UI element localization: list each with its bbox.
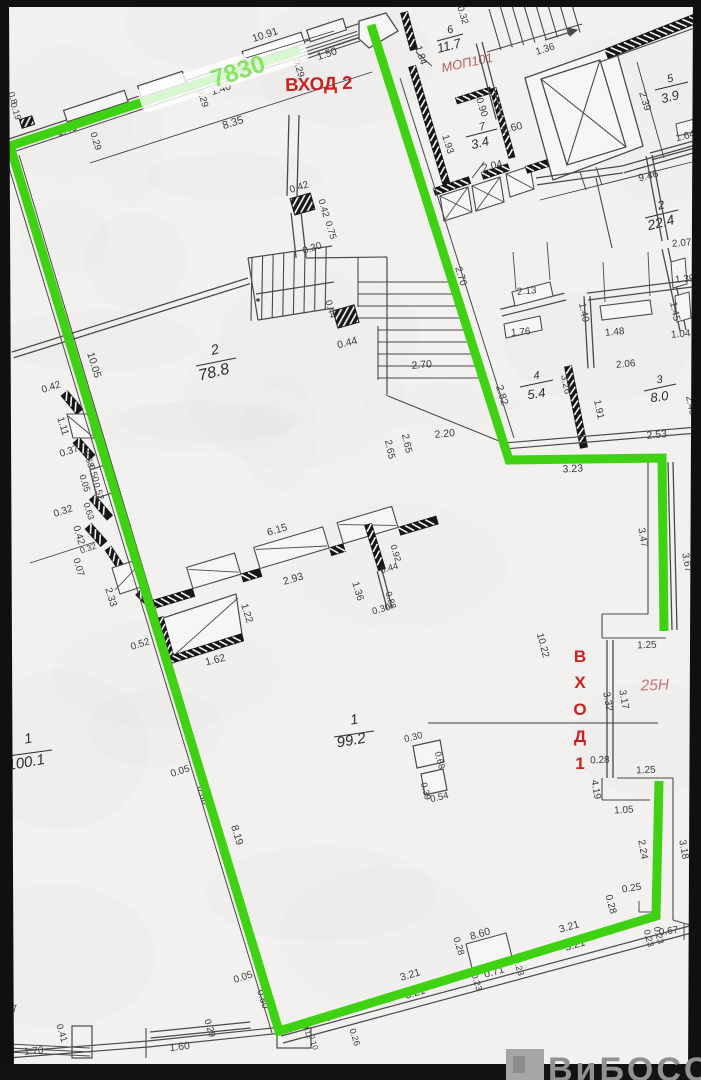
svg-text:1.04: 1.04 [671, 328, 692, 341]
svg-text:В: В [574, 647, 586, 666]
svg-text:1.05: 1.05 [614, 804, 634, 816]
svg-text:8.0: 8.0 [649, 388, 670, 405]
svg-text:1.76: 1.76 [511, 326, 532, 339]
svg-text:25Н: 25Н [639, 676, 670, 694]
svg-text:ВХОД 2: ВХОД 2 [285, 72, 353, 95]
svg-text:Х: Х [574, 673, 586, 692]
svg-text:3.23: 3.23 [562, 462, 583, 475]
svg-text:2.13: 2.13 [517, 285, 538, 298]
svg-text:2.06: 2.06 [616, 358, 637, 371]
svg-text:1.25: 1.25 [637, 640, 657, 652]
svg-text:О: О [573, 700, 586, 719]
svg-text:1.25: 1.25 [636, 765, 656, 777]
svg-text:2.53: 2.53 [646, 428, 668, 442]
svg-text:1.48: 1.48 [605, 326, 626, 339]
svg-text:1: 1 [575, 754, 584, 773]
svg-text:1.60: 1.60 [169, 1040, 191, 1054]
svg-text:2.20: 2.20 [434, 427, 456, 441]
svg-text:5.4: 5.4 [526, 385, 546, 402]
svg-text:2.70: 2.70 [411, 358, 433, 372]
svg-text:2.07: 2.07 [672, 237, 693, 250]
svg-text:Д: Д [574, 727, 586, 746]
svg-text:1.70: 1.70 [24, 1045, 45, 1058]
svg-text:ВиБОСС: ВиБОСС [548, 1051, 701, 1080]
svg-text:0.28: 0.28 [590, 755, 610, 767]
